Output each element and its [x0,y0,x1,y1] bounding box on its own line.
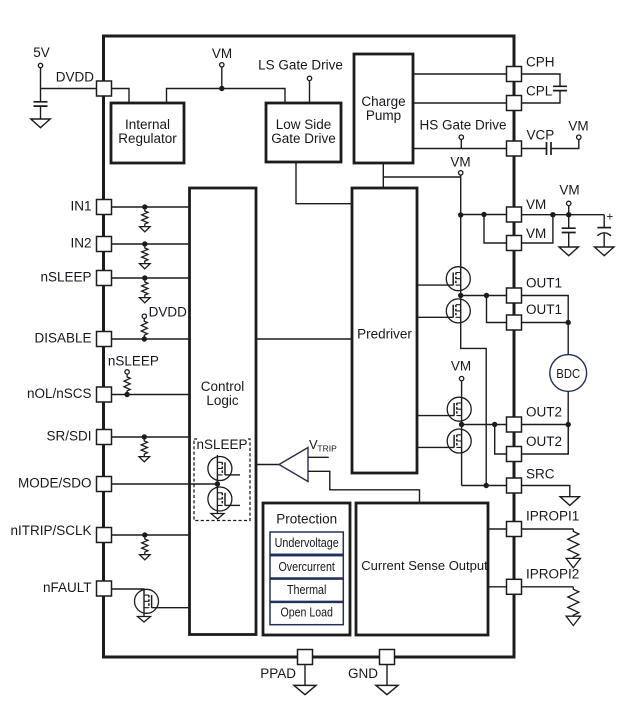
svg-text:nSLEEP: nSLEEP [108,354,159,369]
svg-text:OUT1: OUT1 [526,302,562,317]
svg-text:Predriver: Predriver [357,327,412,342]
svg-text:Open Load: Open Load [280,604,333,619]
svg-text:Thermal: Thermal [287,582,326,597]
svg-text:Undervoltage: Undervoltage [275,535,339,550]
svg-text:TRIP: TRIP [317,443,337,453]
svg-text:nFAULT: nFAULT [43,580,92,595]
svg-text:SRC: SRC [526,467,555,482]
svg-text:DVDD: DVDD [56,70,95,85]
svg-text:nSLEEP: nSLEEP [40,269,91,284]
svg-text:nITRIP/SCLK: nITRIP/SCLK [10,523,91,538]
svg-text:Logic: Logic [206,393,239,408]
svg-text:HS Gate Drive: HS Gate Drive [419,118,506,133]
svg-text:DISABLE: DISABLE [34,330,91,345]
svg-text:BDC: BDC [556,366,580,381]
svg-text:+: + [607,212,614,224]
svg-text:OUT2: OUT2 [526,405,562,420]
svg-text:IPROPI2: IPROPI2 [526,567,579,582]
svg-text:DVDD: DVDD [149,305,188,320]
svg-text:Internal: Internal [125,117,170,132]
svg-text:nOL/nSCS: nOL/nSCS [27,386,92,401]
svg-text:OUT2: OUT2 [526,434,562,449]
svg-text:Current Sense Output: Current Sense Output [361,558,488,573]
svg-text:VM: VM [526,226,546,241]
svg-text:GND: GND [348,666,378,681]
svg-text:Pump: Pump [366,108,401,123]
svg-text:VM: VM [450,155,470,170]
svg-text:nSLEEP: nSLEEP [196,437,247,452]
svg-text:SR/SDI: SR/SDI [46,428,91,443]
svg-text:VM: VM [559,183,579,198]
svg-text:LS Gate Drive: LS Gate Drive [258,58,343,73]
svg-text:VM: VM [451,359,471,374]
svg-text:Overcurrent: Overcurrent [279,559,336,574]
svg-text:PPAD: PPAD [260,666,296,681]
svg-text:IPROPI1: IPROPI1 [526,509,579,524]
svg-text:Charge: Charge [361,94,405,109]
svg-text:Control: Control [201,379,245,394]
svg-text:CPL: CPL [526,84,553,99]
svg-text:OUT1: OUT1 [526,276,562,291]
svg-text:VCP: VCP [527,128,555,143]
svg-text:MODE/SDO: MODE/SDO [18,475,92,490]
svg-text:VM: VM [526,197,546,212]
svg-text:Low Side: Low Side [276,117,332,132]
svg-text:IN1: IN1 [70,199,91,214]
svg-text:Protection: Protection [276,512,337,527]
svg-text:IN2: IN2 [70,235,91,250]
svg-text:VM: VM [568,119,588,134]
svg-text:Regulator: Regulator [118,131,177,146]
svg-text:5V: 5V [33,45,50,60]
svg-text:CPH: CPH [526,55,555,70]
svg-text:Gate Drive: Gate Drive [271,131,336,146]
svg-text:VM: VM [212,46,232,61]
